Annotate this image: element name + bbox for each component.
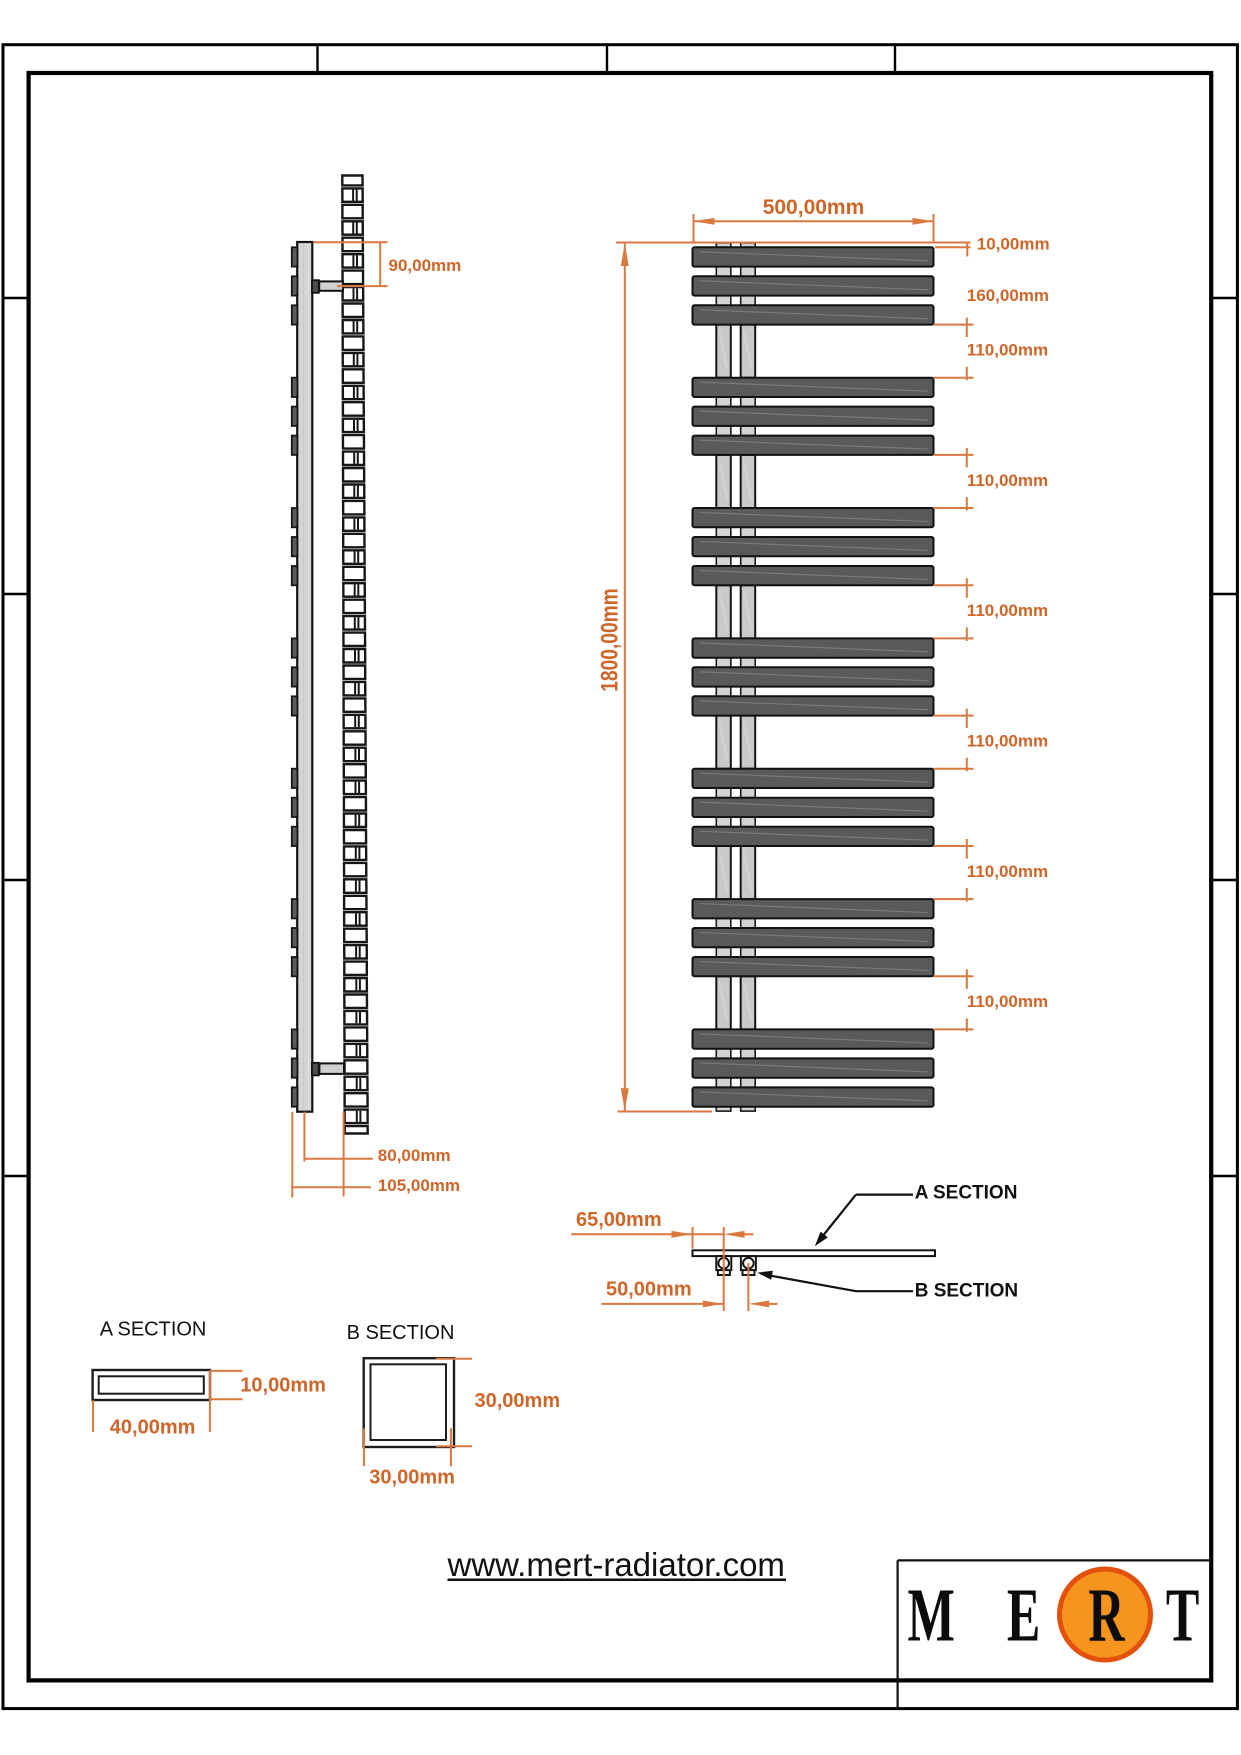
svg-text:30,00mm: 30,00mm <box>475 1390 561 1412</box>
svg-text:110,00mm: 110,00mm <box>967 862 1048 881</box>
svg-text:105,00mm: 105,00mm <box>378 1176 460 1195</box>
svg-text:110,00mm: 110,00mm <box>967 471 1048 490</box>
svg-text:110,00mm: 110,00mm <box>967 992 1048 1011</box>
svg-text:B SECTION: B SECTION <box>915 1281 1018 1302</box>
svg-text:110,00mm: 110,00mm <box>967 601 1048 620</box>
svg-text:110,00mm: 110,00mm <box>967 732 1048 751</box>
svg-text:500,00mm: 500,00mm <box>763 196 865 219</box>
svg-text:A SECTION: A SECTION <box>915 1183 1018 1204</box>
svg-text:T: T <box>1166 1573 1199 1657</box>
svg-text:R: R <box>1088 1573 1125 1657</box>
svg-text:M: M <box>907 1573 954 1657</box>
svg-text:10,00mm: 10,00mm <box>240 1374 326 1396</box>
svg-text:A SECTION: A SECTION <box>100 1318 207 1340</box>
svg-text:40,00mm: 40,00mm <box>110 1417 196 1439</box>
svg-text:1800,00mm: 1800,00mm <box>595 588 623 691</box>
svg-text:www.mert-radiator.com: www.mert-radiator.com <box>447 1546 785 1583</box>
svg-text:30,00mm: 30,00mm <box>369 1467 455 1489</box>
svg-text:50,00mm: 50,00mm <box>606 1279 692 1301</box>
svg-text:90,00mm: 90,00mm <box>389 256 462 275</box>
svg-text:E: E <box>1007 1573 1040 1657</box>
svg-text:80,00mm: 80,00mm <box>378 1146 451 1165</box>
svg-text:B SECTION: B SECTION <box>347 1322 455 1344</box>
svg-text:10,00mm: 10,00mm <box>977 235 1050 254</box>
svg-text:110,00mm: 110,00mm <box>967 340 1048 359</box>
svg-text:160,00mm: 160,00mm <box>967 286 1049 305</box>
svg-text:65,00mm: 65,00mm <box>576 1209 662 1231</box>
